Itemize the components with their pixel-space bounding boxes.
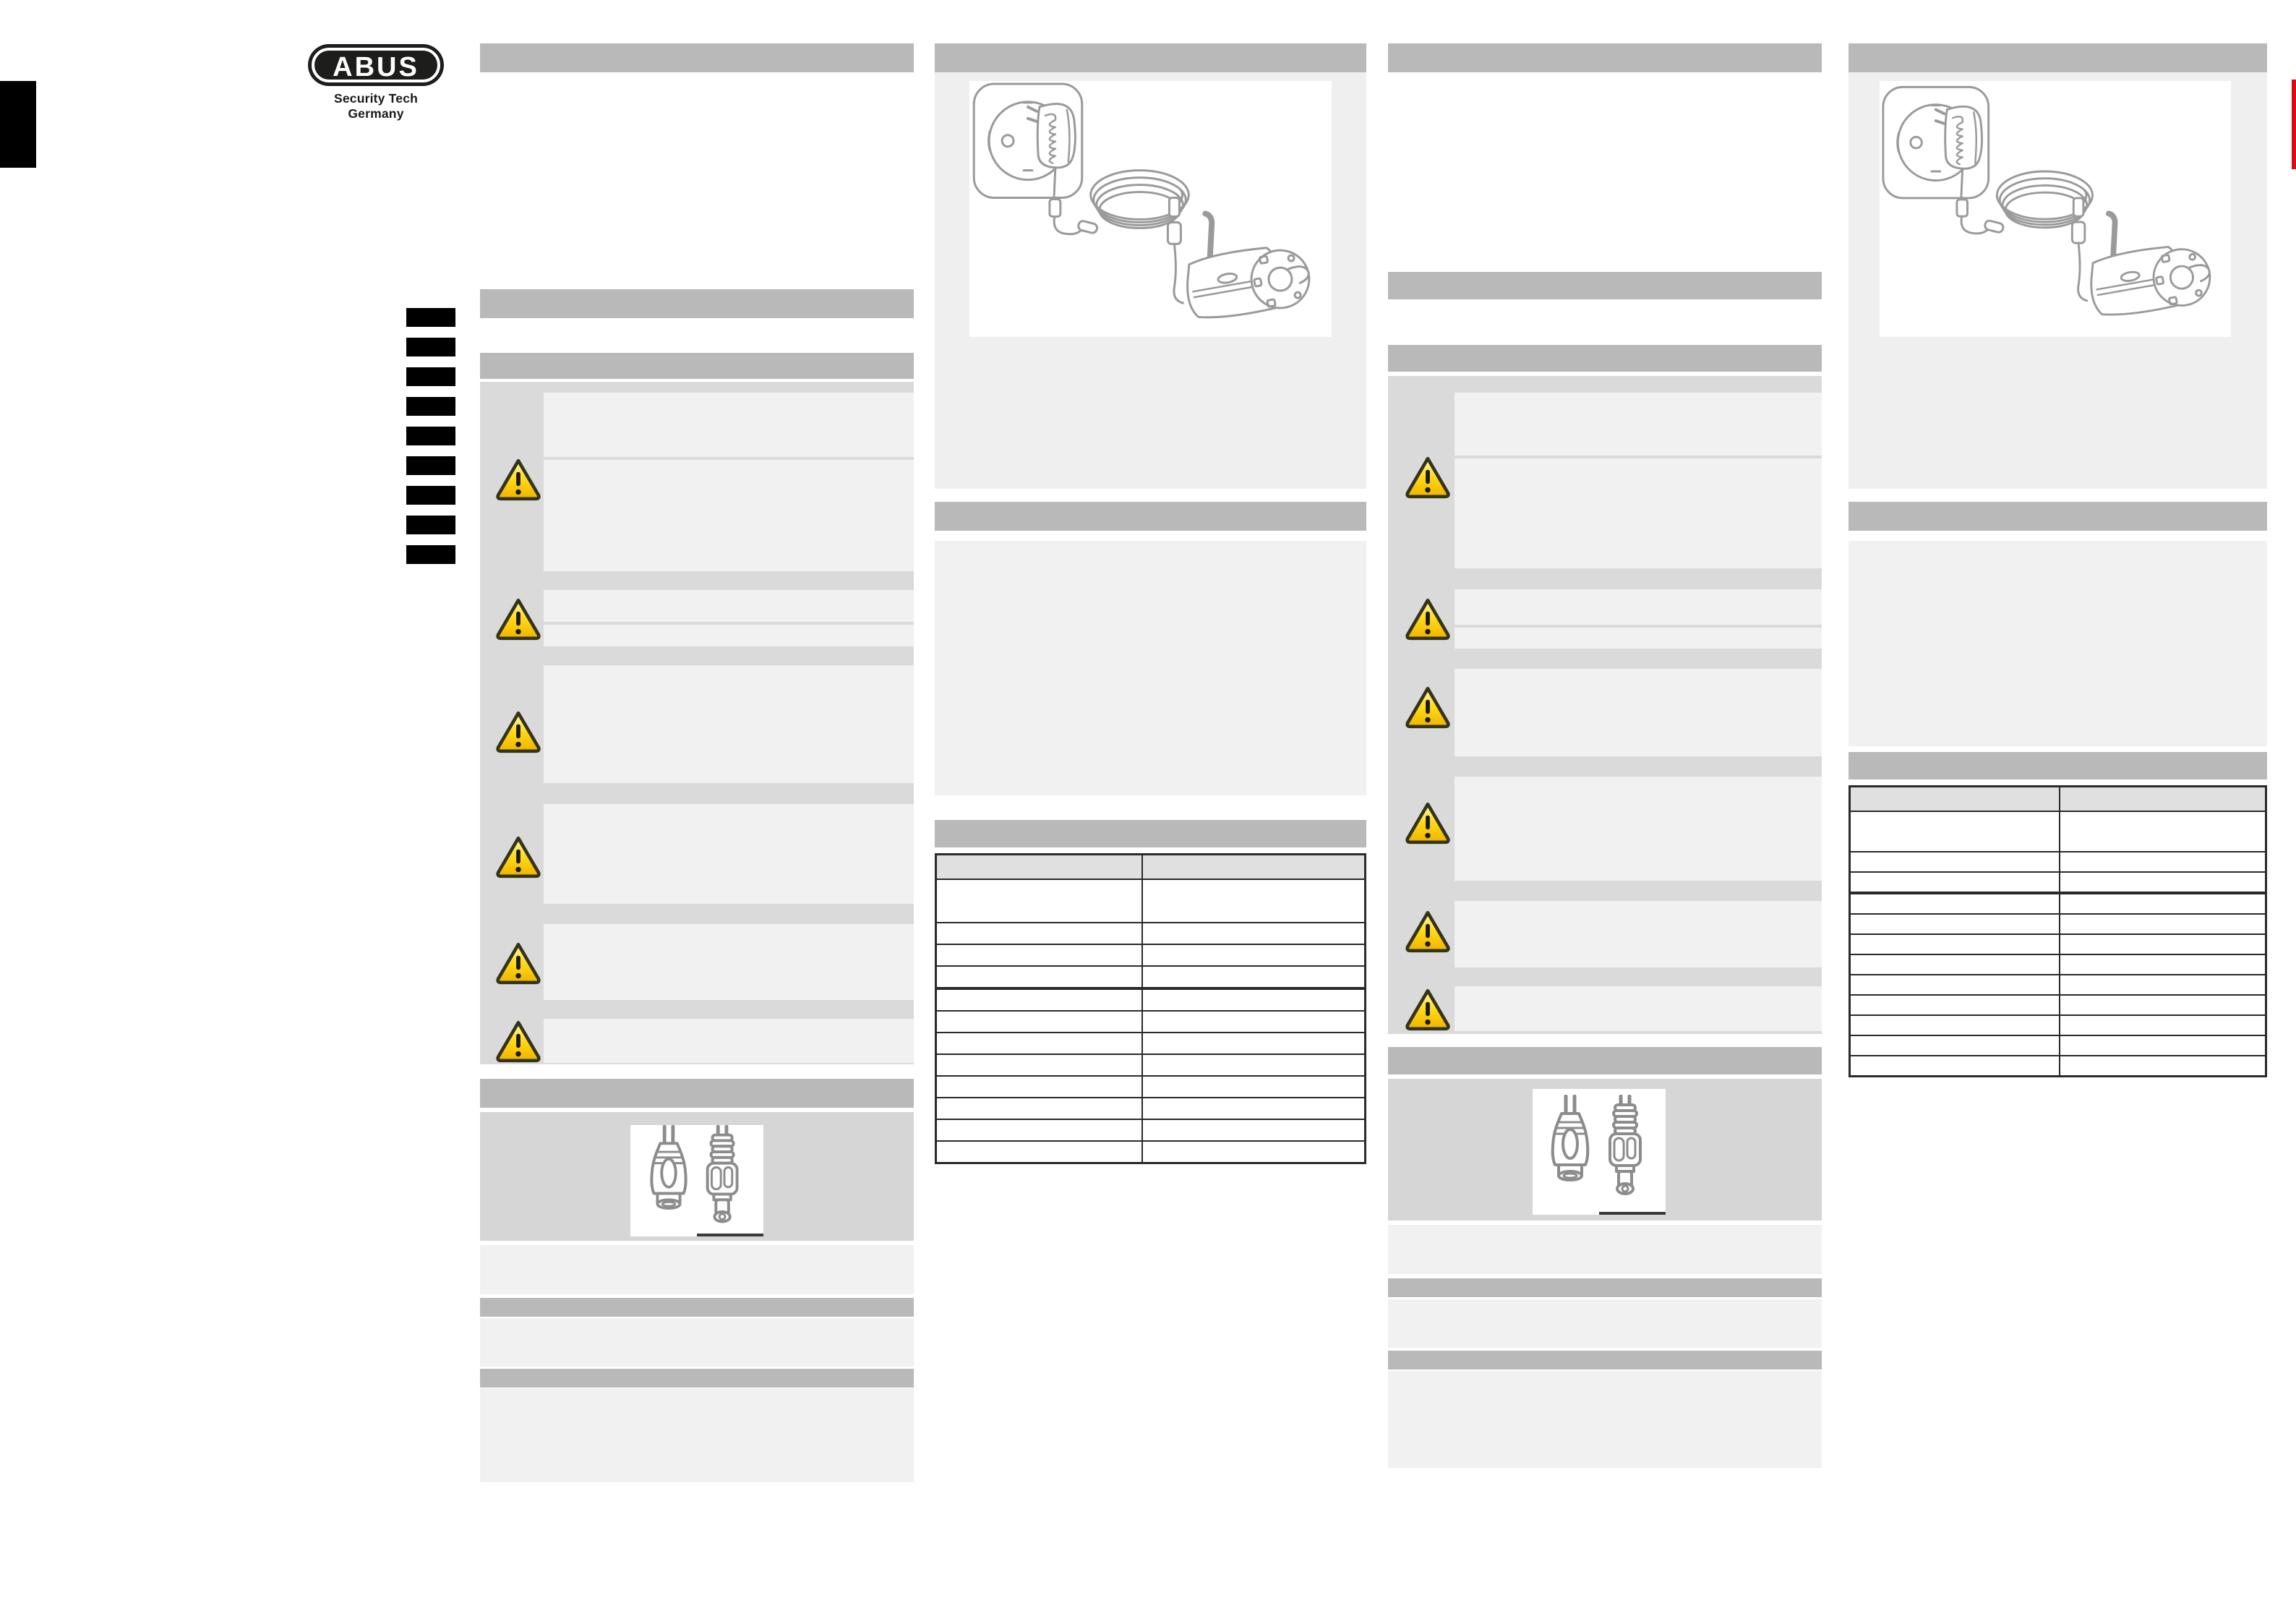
warning-triangle-icon bbox=[494, 458, 542, 501]
safety-panel bbox=[1455, 669, 1822, 756]
camera-setup-figure bbox=[1880, 81, 2231, 337]
col4-text-panel bbox=[1849, 541, 2267, 746]
spec-table-cell bbox=[1142, 1054, 1366, 1076]
col3-section-bar bbox=[1388, 345, 1822, 372]
spec-table-cell bbox=[1142, 966, 1366, 988]
warning-triangle-icon bbox=[494, 941, 542, 985]
spec-table-cell bbox=[2060, 914, 2266, 934]
language-tab-marker bbox=[406, 486, 455, 505]
safety-panel bbox=[544, 804, 914, 904]
spec-table-cell bbox=[2060, 1056, 2266, 1077]
safety-panel bbox=[544, 665, 914, 783]
safety-panel bbox=[1455, 393, 1822, 456]
col4-figure-block bbox=[1849, 72, 2267, 489]
spec-table-cell bbox=[1850, 975, 2060, 995]
spec-table-cell bbox=[936, 944, 1142, 966]
spec-table-cell bbox=[1142, 988, 1366, 1011]
col1-divider-bar bbox=[480, 1298, 914, 1317]
col2-spec-table-wrap bbox=[935, 853, 1366, 1164]
spec-table-cell bbox=[936, 1119, 1142, 1141]
brand-tagline: Security Tech Germany bbox=[306, 91, 446, 121]
col3-safety-block bbox=[1388, 376, 1822, 1034]
col4-section-bar bbox=[1849, 502, 2267, 531]
warning-triangle-icon bbox=[1404, 910, 1452, 953]
spec-table-header-cell bbox=[936, 855, 1142, 880]
col1-text-panel bbox=[480, 1388, 914, 1482]
col1-section-bar bbox=[480, 353, 914, 379]
spec-table-header-cell bbox=[2060, 787, 2266, 812]
warning-triangle-icon bbox=[494, 710, 542, 753]
spec-table-cell bbox=[1850, 872, 2060, 893]
safety-panel bbox=[544, 924, 914, 1000]
spec-table-cell bbox=[2060, 1015, 2266, 1035]
language-tab-marker bbox=[406, 516, 455, 534]
col3-section-bar bbox=[1388, 1047, 1822, 1074]
spec-table-cell bbox=[1142, 1119, 1366, 1141]
dc-power-connector-pair-illustration bbox=[630, 1125, 763, 1236]
col3-connector-block bbox=[1388, 1079, 1822, 1221]
safety-panel bbox=[1455, 986, 1822, 1031]
spec-table-cell bbox=[1850, 1015, 2060, 1035]
abus-logo-text: ABUS bbox=[333, 52, 419, 82]
spec-table-cell bbox=[1850, 893, 2060, 914]
spec-table-cell bbox=[936, 1098, 1142, 1119]
col1-divider-bar bbox=[480, 1369, 914, 1388]
safety-panel bbox=[1455, 589, 1822, 625]
warning-triangle-icon bbox=[1404, 685, 1452, 729]
camera-power-setup-illustration bbox=[969, 81, 1332, 337]
spec-table-cell bbox=[1850, 995, 2060, 1015]
col1-text-panel bbox=[480, 1318, 914, 1367]
spec-table-cell bbox=[2060, 811, 2266, 852]
col2-section-bar bbox=[935, 502, 1366, 531]
spec-table-cell bbox=[936, 1076, 1142, 1098]
spec-table-cell bbox=[936, 988, 1142, 1011]
spec-table-cell bbox=[936, 1011, 1142, 1033]
safety-panel bbox=[1455, 458, 1822, 568]
figure-underline bbox=[697, 1234, 763, 1236]
spec-table-cell bbox=[1850, 852, 2060, 872]
safety-panel bbox=[1455, 777, 1822, 881]
col4-spec-table-wrap bbox=[1849, 785, 2267, 1077]
col1-title-bar bbox=[480, 43, 914, 72]
camera-setup-figure bbox=[969, 81, 1332, 337]
spec-table-cell bbox=[936, 923, 1142, 944]
col3-divider-bar bbox=[1388, 1278, 1822, 1297]
col3-title-bar bbox=[1388, 43, 1822, 72]
spec-table-header-cell bbox=[1142, 855, 1366, 880]
spec-table-cell bbox=[1142, 923, 1366, 944]
spec-table-cell bbox=[1850, 811, 2060, 852]
language-tab-marker bbox=[406, 397, 455, 416]
safety-panel bbox=[544, 393, 914, 457]
warning-triangle-icon bbox=[1404, 456, 1452, 499]
spec-table-cell bbox=[2060, 872, 2266, 893]
warning-triangle-icon bbox=[494, 597, 542, 641]
spec-table-cell bbox=[2060, 1035, 2266, 1056]
col3-divider-bar bbox=[1388, 1351, 1822, 1369]
col3-section-bar bbox=[1388, 272, 1822, 299]
warning-triangle-icon bbox=[1404, 597, 1452, 641]
spec-table-cell bbox=[1142, 1033, 1366, 1054]
col1-connector-block bbox=[480, 1112, 914, 1241]
col4-title-bar bbox=[1849, 43, 2267, 72]
spec-table-cell bbox=[936, 1054, 1142, 1076]
spec-table-cell bbox=[1850, 1035, 2060, 1056]
print-mark-right-red bbox=[2292, 80, 2296, 169]
safety-panel bbox=[544, 590, 914, 622]
spec-table-cell bbox=[936, 1033, 1142, 1054]
spec-table-cell bbox=[2060, 852, 2266, 872]
spec-table-cell bbox=[2060, 975, 2266, 995]
camera-power-setup-illustration bbox=[1880, 81, 2231, 337]
col4-section-bar bbox=[1849, 752, 2267, 779]
warning-triangle-icon bbox=[494, 1020, 542, 1063]
spec-table-cell bbox=[936, 879, 1142, 923]
col1-safety-block bbox=[480, 382, 914, 1064]
spec-table-header-cell bbox=[1850, 787, 2060, 812]
figure-underline bbox=[1599, 1212, 1666, 1215]
spec-table-cell bbox=[1850, 1056, 2060, 1077]
language-tab-marker bbox=[406, 338, 455, 356]
spec-table-cell bbox=[2060, 995, 2266, 1015]
spec-table-cell bbox=[1142, 1011, 1366, 1033]
col3-text-panel bbox=[1388, 1371, 1822, 1468]
col1-section-bar bbox=[480, 289, 914, 318]
safety-panel bbox=[1455, 901, 1822, 967]
col2-text-panel bbox=[935, 541, 1366, 795]
col1-section-bar bbox=[480, 1079, 914, 1108]
spec-table-cell bbox=[1142, 879, 1366, 923]
dc-connector-figure bbox=[1533, 1089, 1666, 1215]
spec-table-cell bbox=[2060, 934, 2266, 954]
col2-title-bar bbox=[935, 43, 1366, 72]
dc-power-connector-pair-illustration bbox=[1533, 1089, 1666, 1215]
spec-table-cell bbox=[1142, 1098, 1366, 1119]
spec-table-cell bbox=[936, 966, 1142, 988]
abus-logo-icon: ABUS bbox=[306, 42, 446, 88]
safety-panel bbox=[544, 625, 914, 646]
col1-text-panel bbox=[480, 1245, 914, 1294]
spec-table-cell bbox=[2060, 954, 2266, 975]
spec-table-cell bbox=[2060, 893, 2266, 914]
dc-connector-figure bbox=[630, 1125, 763, 1236]
spec-table-cell bbox=[1142, 944, 1366, 966]
spec-table bbox=[1849, 785, 2267, 1077]
language-tab-marker bbox=[406, 367, 455, 386]
spec-table bbox=[935, 853, 1366, 1164]
spec-table-cell bbox=[1850, 954, 2060, 975]
language-tab-marker bbox=[406, 427, 455, 445]
warning-triangle-icon bbox=[1404, 801, 1452, 845]
print-mark-left-black bbox=[0, 81, 36, 168]
col2-figure-block bbox=[935, 72, 1366, 489]
language-tab-marker bbox=[406, 545, 455, 564]
language-tab-marker bbox=[406, 456, 455, 475]
manual-page: ABUS Security Tech Germany bbox=[0, 0, 2296, 1624]
spec-table-cell bbox=[936, 1141, 1142, 1163]
col3-text-panel bbox=[1388, 1299, 1822, 1348]
warning-triangle-icon bbox=[494, 835, 542, 879]
spec-table-cell bbox=[1850, 914, 2060, 934]
safety-panel bbox=[544, 1019, 914, 1063]
safety-panel bbox=[544, 460, 914, 571]
spec-table-cell bbox=[1142, 1141, 1366, 1163]
spec-table-cell bbox=[1850, 934, 2060, 954]
warning-triangle-icon bbox=[1404, 988, 1452, 1031]
safety-panel bbox=[1455, 628, 1822, 649]
spec-table-cell bbox=[1142, 1076, 1366, 1098]
col2-section-bar bbox=[935, 820, 1366, 847]
col3-text-panel bbox=[1388, 1225, 1822, 1274]
language-tab-marker bbox=[406, 308, 455, 327]
